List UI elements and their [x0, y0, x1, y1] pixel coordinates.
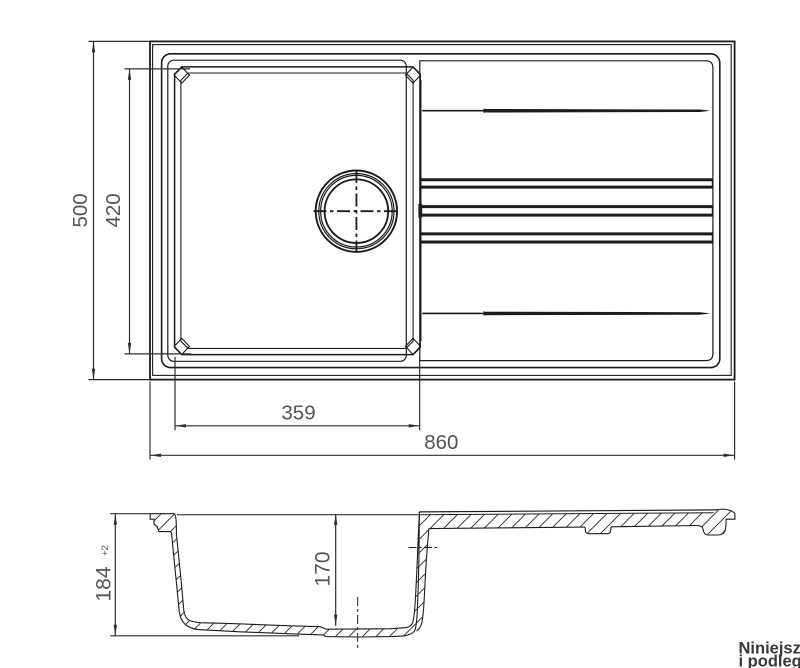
svg-text:860: 860 [424, 431, 458, 454]
svg-text:359: 359 [281, 402, 315, 425]
svg-text:i podlega oc: i podlega oc [739, 653, 800, 668]
svg-text:500: 500 [69, 193, 92, 227]
svg-text:170: 170 [312, 551, 335, 586]
svg-text:420: 420 [102, 193, 125, 227]
